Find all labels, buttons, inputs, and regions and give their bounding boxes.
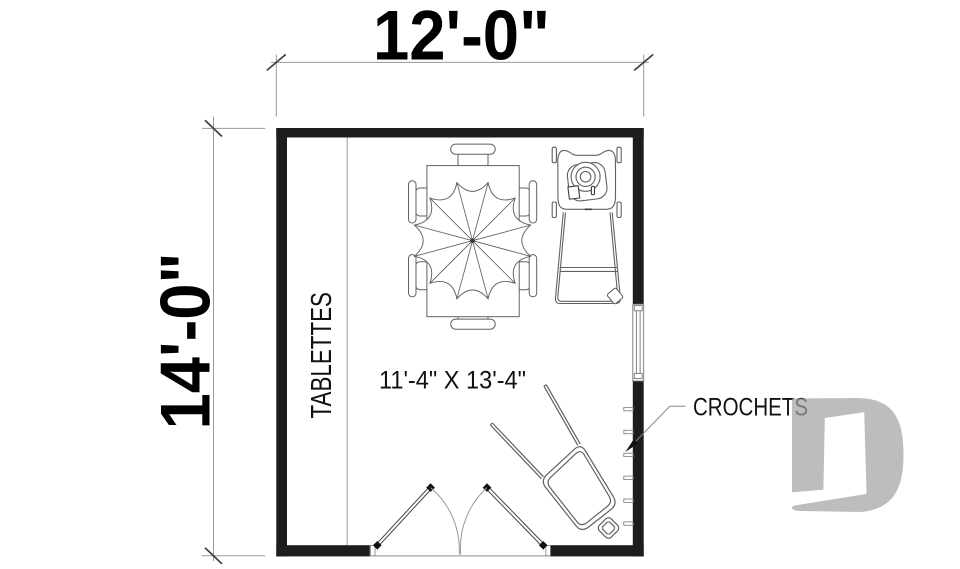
svg-text:CROCHETS: CROCHETS bbox=[693, 393, 808, 421]
svg-text:TABLETTES: TABLETTES bbox=[306, 292, 338, 419]
svg-text:11'-4" X 13'-4": 11'-4" X 13'-4" bbox=[379, 367, 526, 395]
svg-text:14'-0": 14'-0" bbox=[146, 253, 225, 430]
svg-text:12'-0": 12'-0" bbox=[373, 0, 550, 74]
